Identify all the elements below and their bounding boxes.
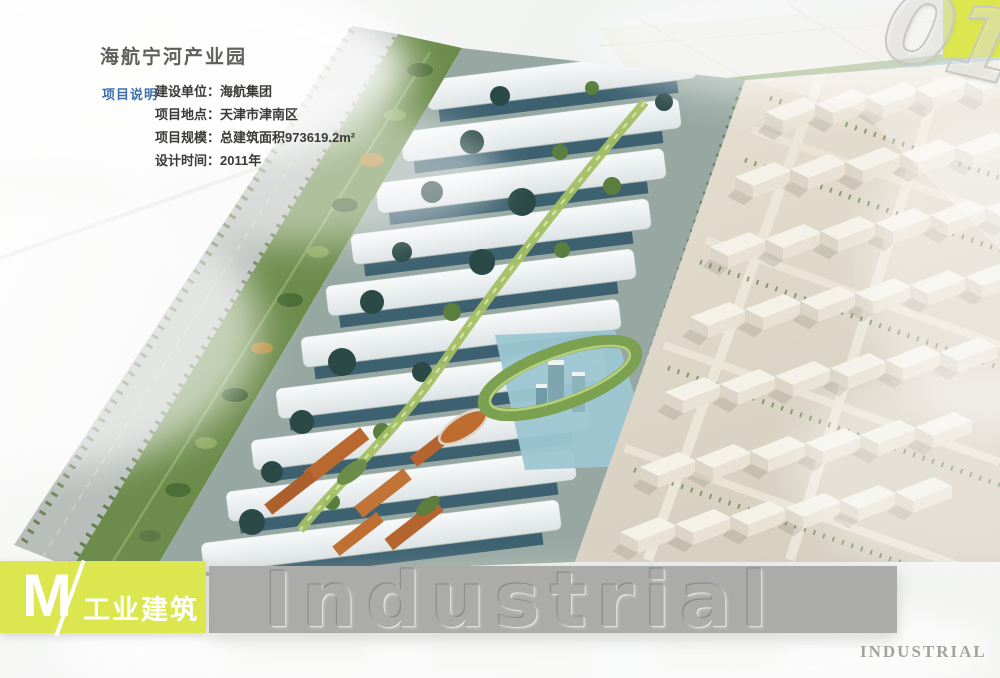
info-row-location: 项目地点：天津市津南区	[155, 107, 355, 130]
info-label: 建设单位：	[155, 84, 220, 99]
category-block: M 工业建筑	[0, 561, 206, 633]
project-info-list: 建设单位：海航集团 项目地点：天津市津南区 项目规模：总建筑面积973619.2…	[155, 84, 355, 176]
category-name: 工业建筑	[83, 588, 199, 627]
info-label: 设计时间：	[155, 153, 220, 168]
info-value: 2011年	[220, 153, 261, 168]
info-row-owner: 建设单位：海航集团	[155, 84, 355, 107]
info-label: 项目规模：	[155, 130, 220, 145]
info-row-design-time: 设计时间：2011年	[155, 153, 355, 176]
watermark-text: Industrial	[209, 566, 777, 633]
info-row-scale: 项目规模：总建筑面积973619.2m²	[155, 130, 355, 153]
watermark-band: Industrial	[209, 566, 897, 633]
page-title: 海航宁河产业园	[100, 42, 247, 69]
portfolio-page: 海航宁河产业园 项目说明 建设单位：海航集团 项目地点：天津市津南区 项目规模：…	[0, 0, 1000, 678]
section-label: 项目说明	[102, 84, 158, 103]
category-letter: M	[22, 560, 72, 632]
info-label: 项目地点：	[155, 107, 220, 122]
info-value: 海航集团	[220, 84, 272, 99]
info-value: 天津市津南区	[220, 107, 298, 122]
industrial-stamp: INDUSTRIAL	[860, 642, 987, 662]
info-value: 总建筑面积973619.2m²	[220, 130, 355, 145]
